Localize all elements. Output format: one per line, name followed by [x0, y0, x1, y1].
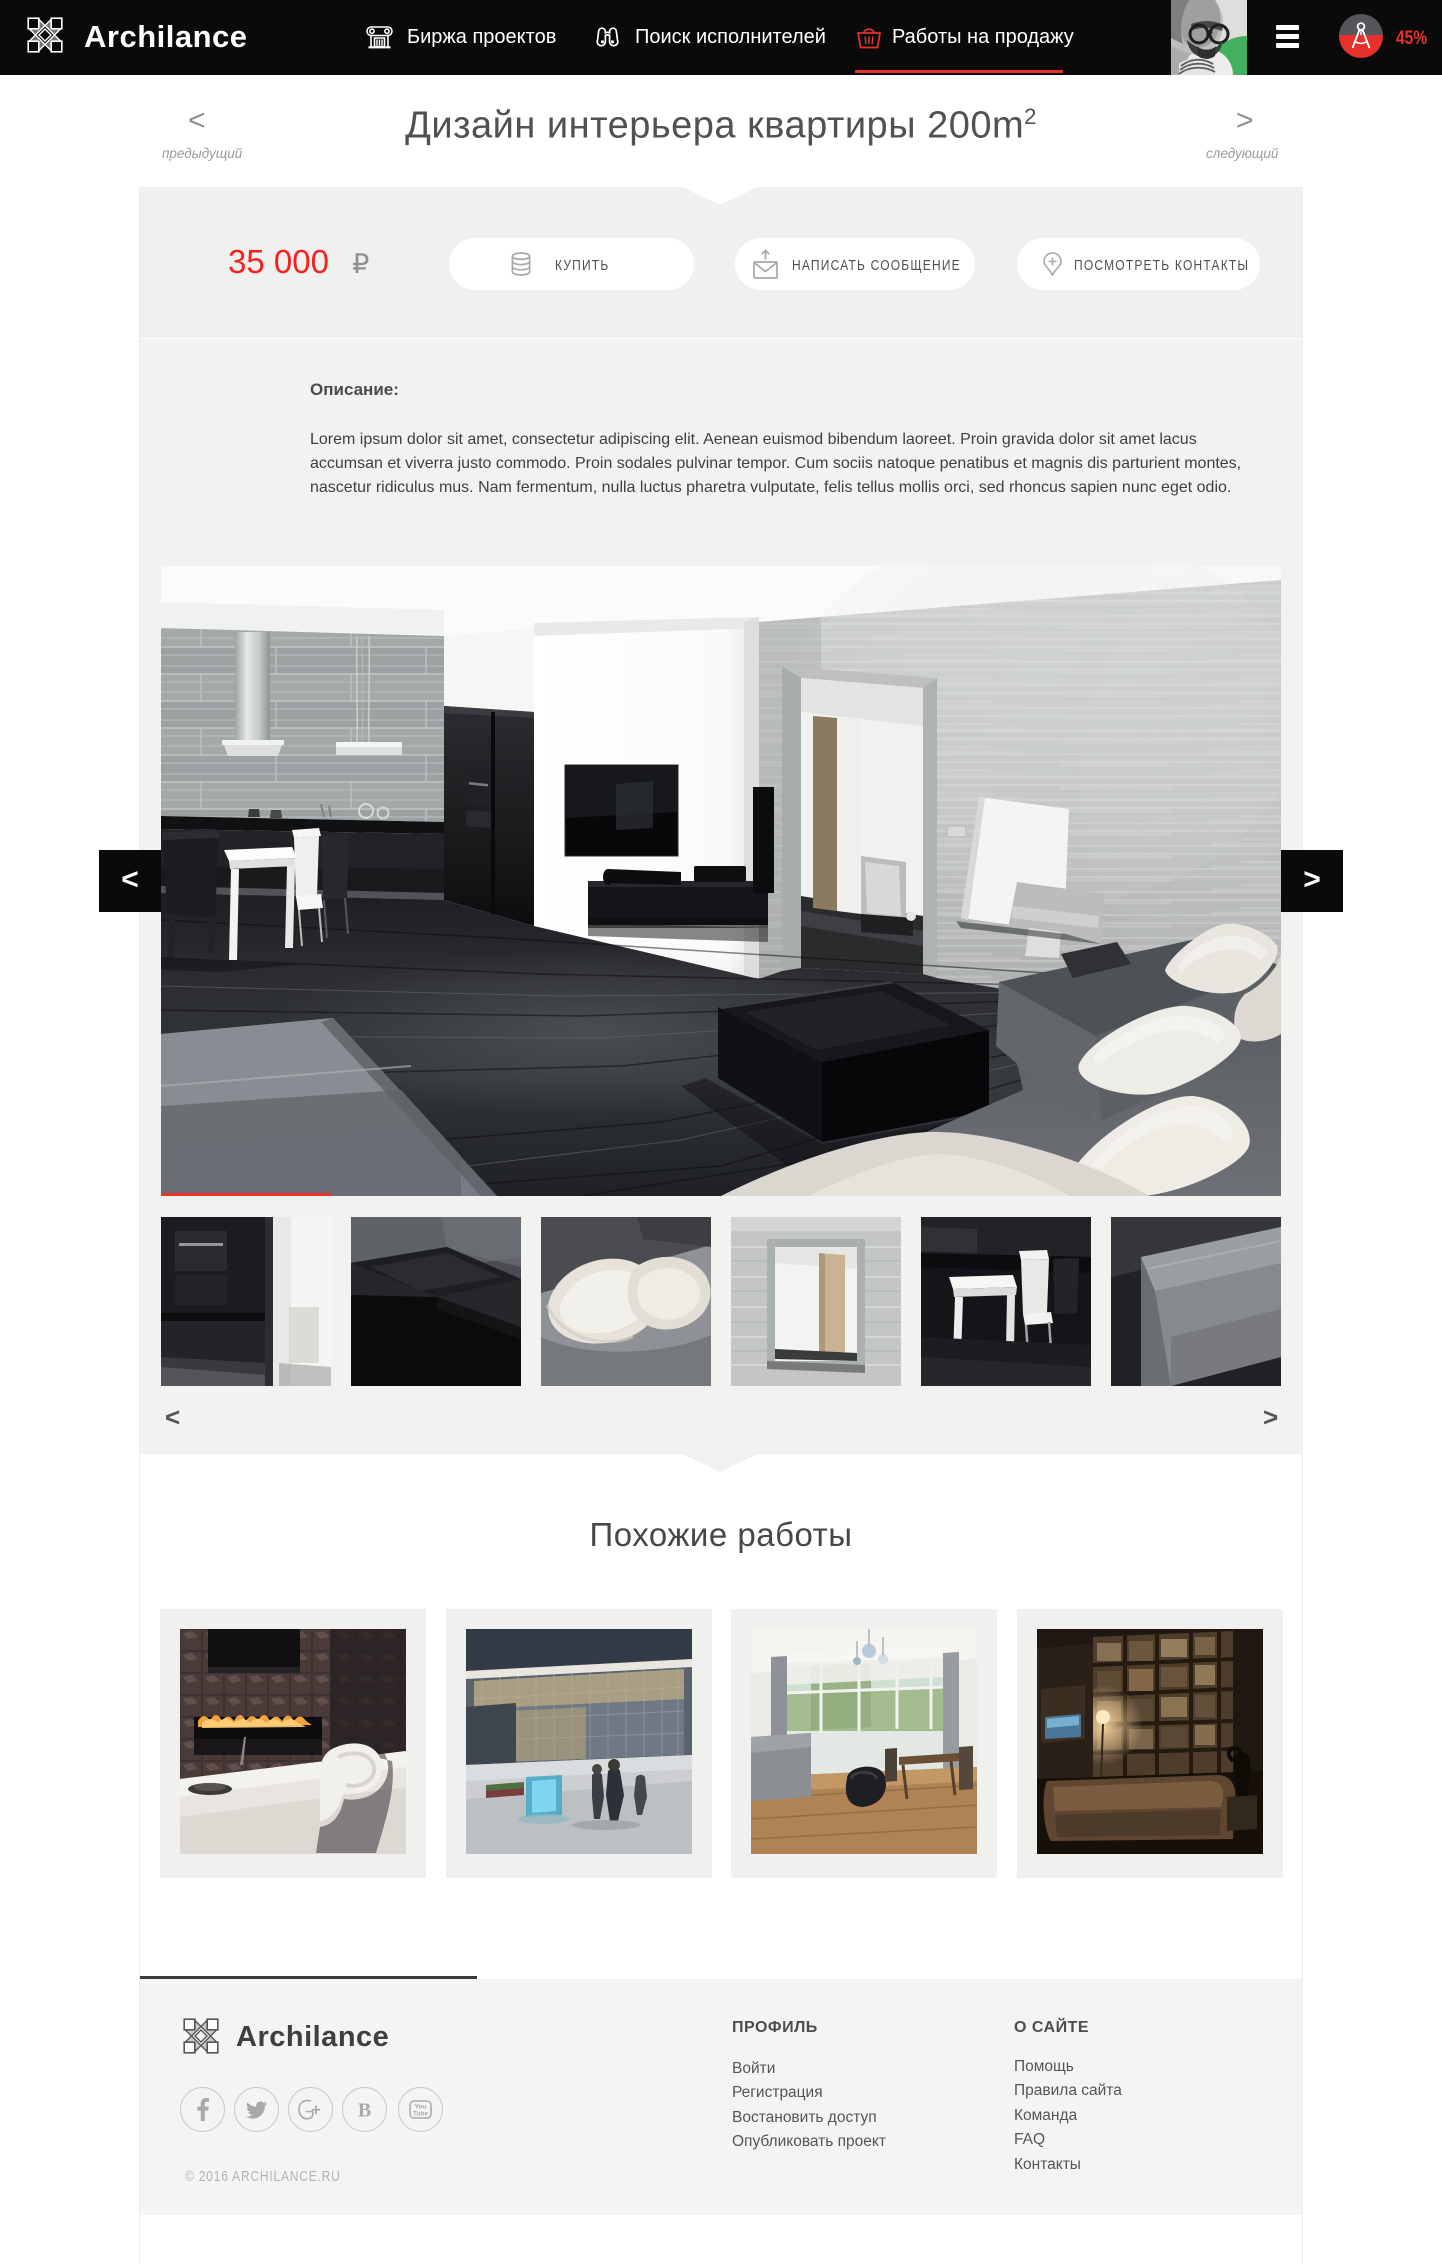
svg-text:You: You: [415, 2104, 427, 2111]
svg-text:B: B: [358, 2100, 371, 2122]
svg-text:Tube: Tube: [413, 2111, 428, 2118]
